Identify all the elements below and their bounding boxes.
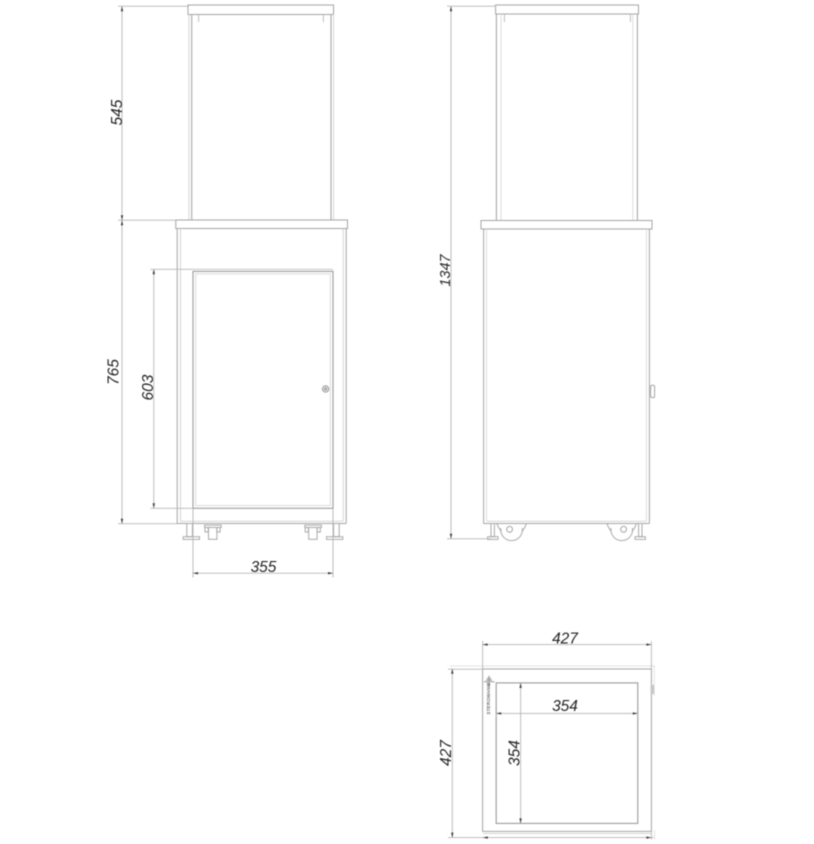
svg-text:1347: 1347	[438, 253, 454, 286]
svg-text:765: 765	[105, 359, 122, 385]
svg-text:545: 545	[109, 99, 126, 125]
svg-text:354: 354	[506, 740, 523, 766]
svg-text:427: 427	[552, 630, 579, 647]
svg-text:355: 355	[251, 559, 277, 576]
svg-text:427: 427	[438, 739, 455, 766]
svg-text:354: 354	[552, 698, 578, 715]
svg-text:603: 603	[140, 374, 157, 400]
svg-text:STEROWANIE: STEROWANIE	[486, 682, 491, 715]
